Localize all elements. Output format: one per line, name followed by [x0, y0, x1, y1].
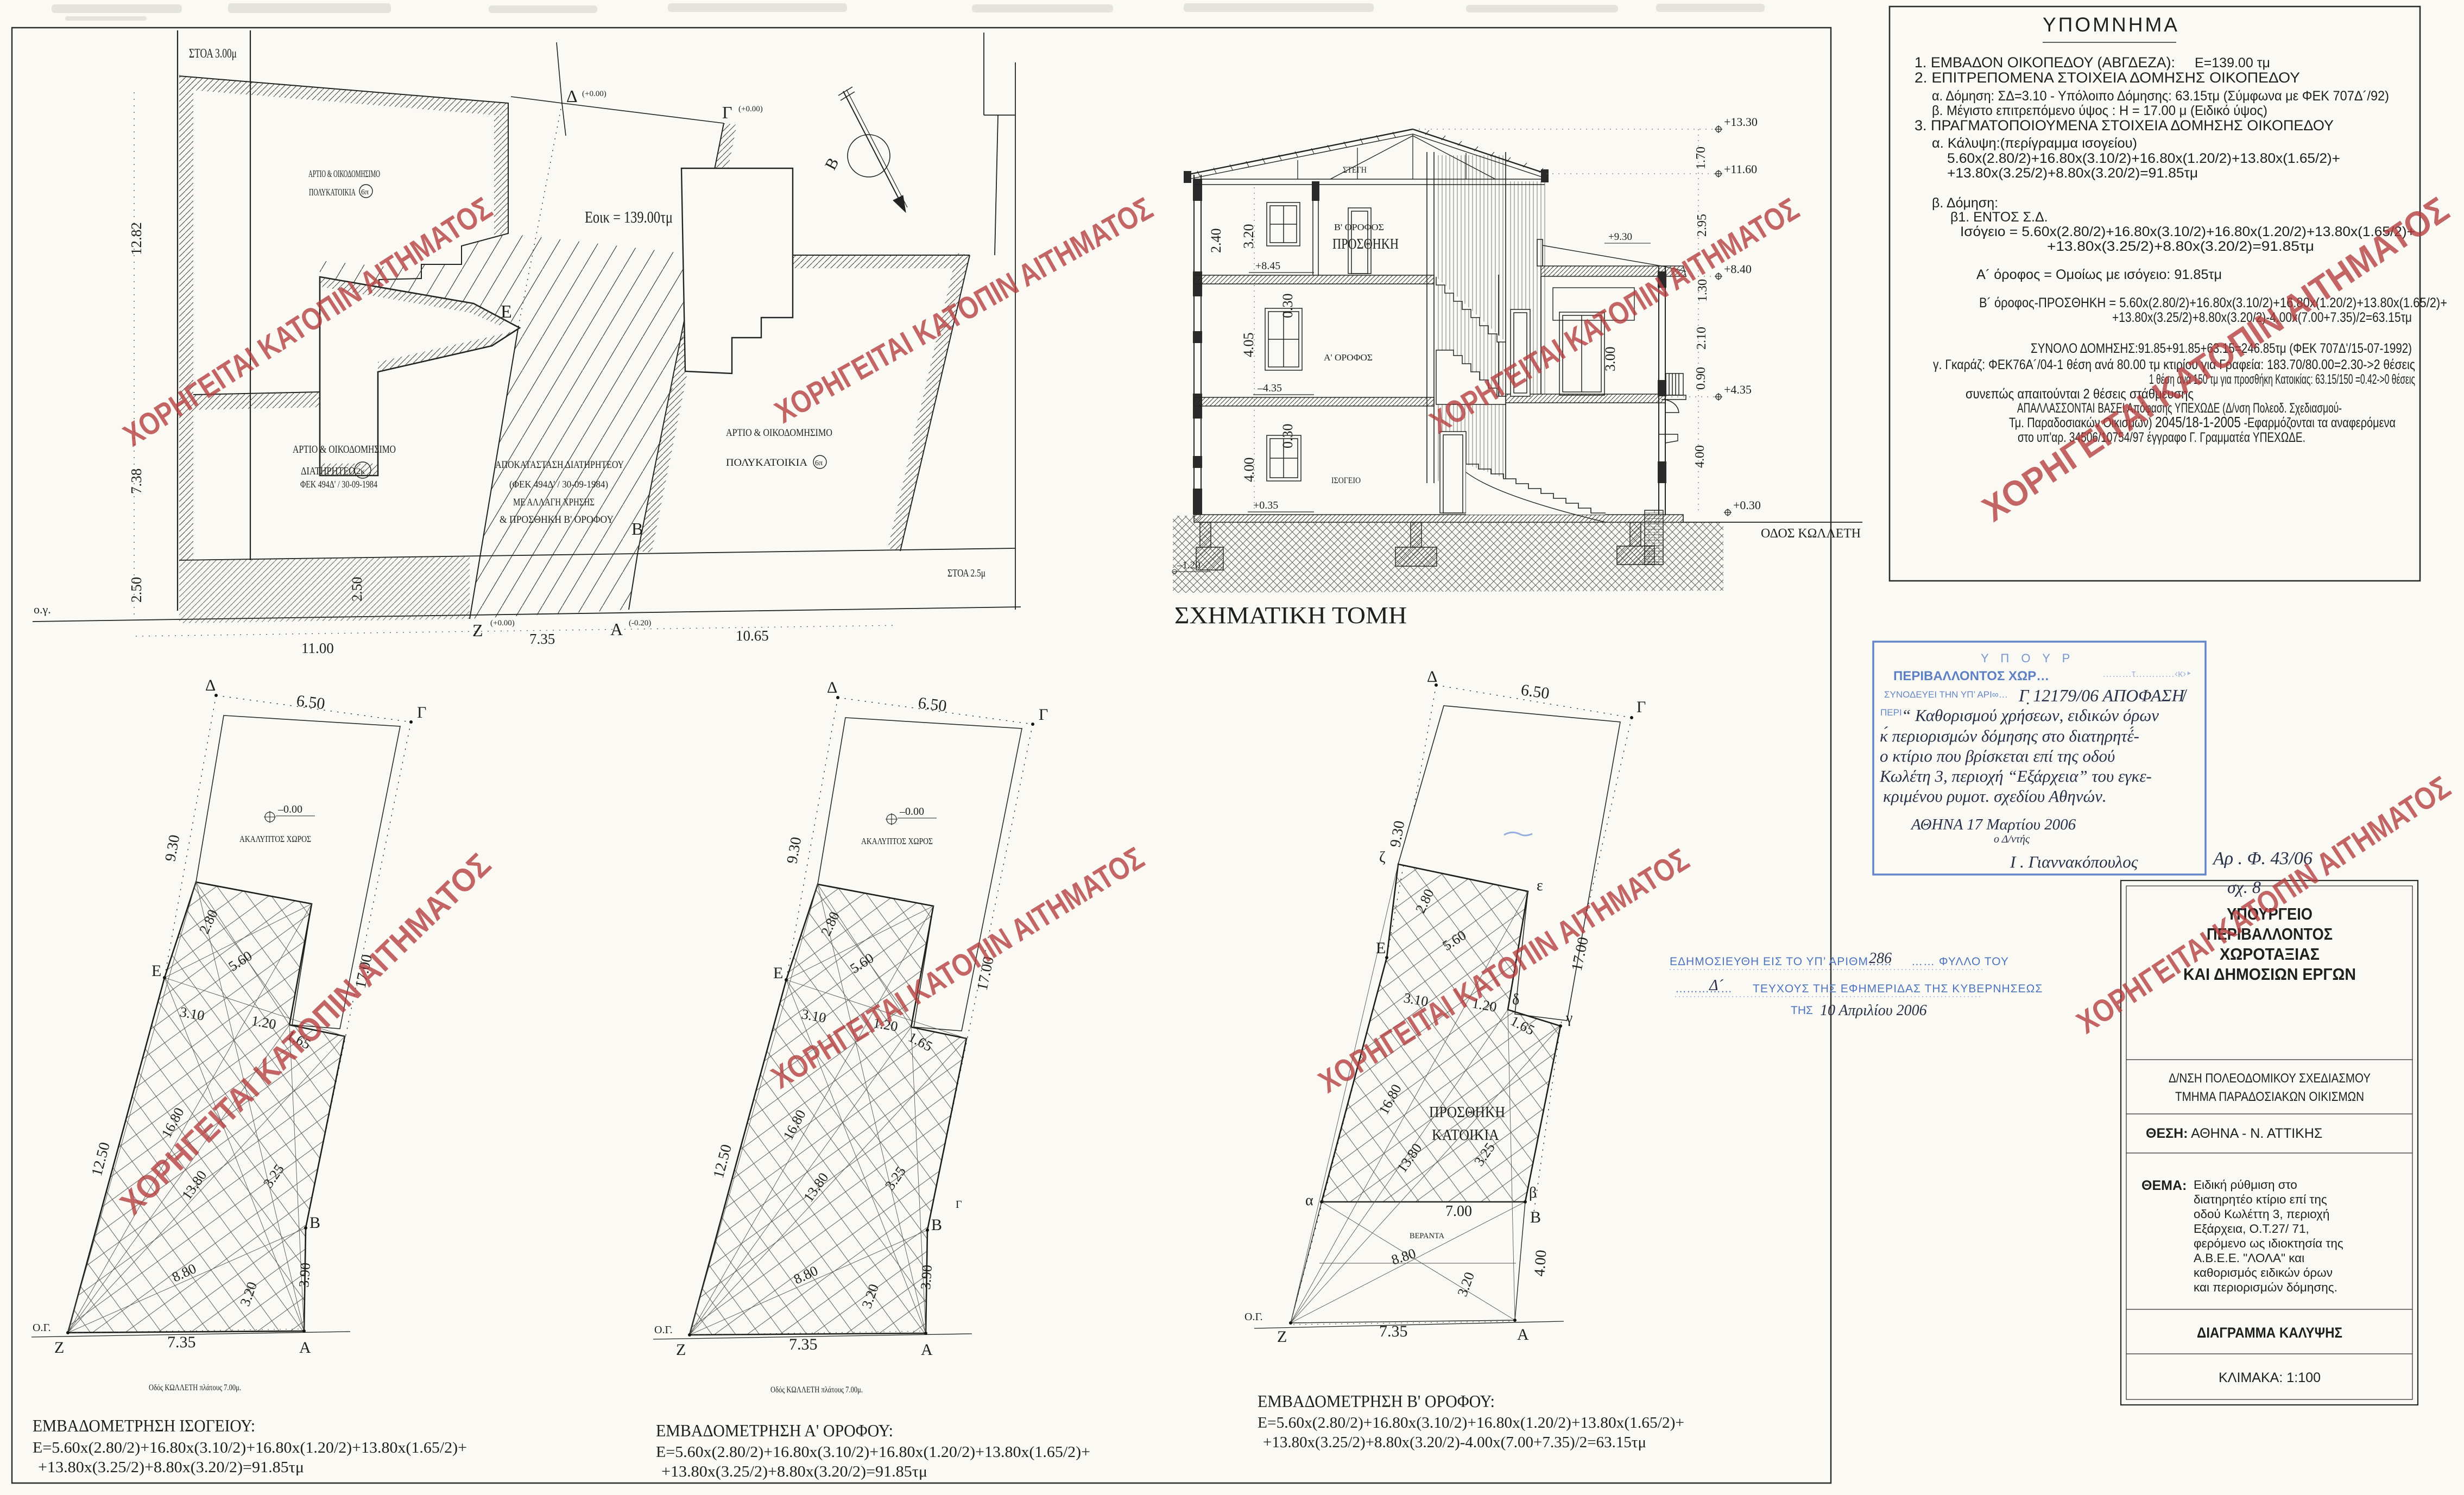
- svg-text:6π: 6π: [815, 459, 823, 467]
- svg-text:Ειδική ρύθμιση στο: Ειδική ρύθμιση στο: [2194, 1178, 2297, 1192]
- svg-text:ΧΩΡΟΤΑΞΙΑΣ: ΧΩΡΟΤΑΞΙΑΣ: [2220, 945, 2320, 964]
- svg-text:Ο.Γ.: Ο.Γ.: [1244, 1311, 1263, 1323]
- svg-text:3. ΠΡΑΓΜΑΤΟΠΟΙΟΥΜΕΝΑ ΣΤΟΙΧΕΙΑ: 3. ΠΡΑΓΜΑΤΟΠΟΙΟΥΜΕΝΑ ΣΤΟΙΧΕΙΑ ΔΟΜΗΣΗΣ ΟΙ…: [1915, 117, 2334, 134]
- svg-text:ο.γ.: ο.γ.: [34, 603, 51, 616]
- svg-text:β. Μέγιστο επιτρεπόμενο ύψος :: β. Μέγιστο επιτρεπόμενο ύψος : Η = 17.00…: [1932, 103, 2267, 118]
- svg-text:286: 286: [1869, 950, 1892, 967]
- svg-text:ΦΕΚ 494Δ' / 30-09-1984: ΦΕΚ 494Δ' / 30-09-1984: [300, 479, 377, 490]
- svg-text:Δ: Δ: [566, 86, 578, 106]
- svg-text:A: A: [299, 1339, 311, 1357]
- svg-text:+11.60: +11.60: [1724, 162, 1757, 176]
- svg-text:2κ: 2κ: [356, 467, 365, 476]
- svg-text:0.90: 0.90: [1694, 367, 1708, 390]
- svg-text:+13.30: +13.30: [1724, 115, 1758, 129]
- svg-text:+13.80x(3.25/2)+8.80x(3.20/2)=: +13.80x(3.25/2)+8.80x(3.20/2)=91.85τμ: [2047, 239, 2314, 254]
- svg-text:1. ΕΜΒΑΔΟΝ ΟΙΚΟΠΕΔΟΥ (ΑΒΓΔΕΖΑ): 1. ΕΜΒΑΔΟΝ ΟΙΚΟΠΕΔΟΥ (ΑΒΓΔΕΖΑ):: [1915, 54, 2175, 71]
- svg-text:7.38: 7.38: [128, 468, 144, 494]
- svg-text:+0.35: +0.35: [1253, 499, 1278, 511]
- svg-text:+13.80x(3.25/2)+8.80x(3.20/2)-: +13.80x(3.25/2)+8.80x(3.20/2)-4.00x(7.00…: [1263, 1434, 1646, 1451]
- svg-text:Δ: Δ: [205, 676, 216, 694]
- svg-text:+0.30: +0.30: [1733, 498, 1761, 512]
- svg-text:7.35: 7.35: [529, 631, 555, 647]
- svg-text:διατηρητέο κτίριο επί της: διατηρητέο κτίριο επί της: [2194, 1193, 2327, 1206]
- svg-text:Ε: Ε: [501, 302, 512, 322]
- svg-text:Εξάρχεια, Ο.Τ.27/ 71,: Εξάρχεια, Ο.Τ.27/ 71,: [2194, 1222, 2309, 1236]
- svg-text:+9.30: +9.30: [1608, 231, 1632, 243]
- svg-text:ΕΜΒΑΔΟΜΕΤΡΗΣΗ ΙΣΟΓΕΙΟΥ:: ΕΜΒΑΔΟΜΕΤΡΗΣΗ ΙΣΟΓΕΙΟΥ:: [33, 1416, 255, 1435]
- svg-text:οδού Κωλέττη 3, περιοχή: οδού Κωλέττη 3, περιοχή: [2194, 1207, 2329, 1221]
- svg-text:‒1.20: ‒1.20: [1177, 560, 1201, 571]
- svg-text:ΤΕΥΧΟΥΣ ΤΗΣ ΕΦΗΜΕΡΙΔΑΣ ΤΗΣ ΚΥΒ: ΤΕΥΧΟΥΣ ΤΗΣ ΕΦΗΜΕΡΙΔΑΣ ΤΗΣ ΚΥΒΕΡΝΗΣΕΩΣ: [1753, 983, 2043, 995]
- svg-text:ΥΠΟΜΝΗΜΑ: ΥΠΟΜΝΗΜΑ: [2043, 14, 2179, 36]
- svg-text:ΣΥΝΟΔΕΥΕΙ ΤΗΝ ΥΠ’ ΑΡΙ∞…: ΣΥΝΟΔΕΥΕΙ ΤΗΝ ΥΠ’ ΑΡΙ∞…: [1884, 689, 2008, 700]
- svg-text:2.40: 2.40: [1208, 229, 1224, 254]
- svg-text:Ε=5.60x(2.80/2)+16.80x(3.10/2): Ε=5.60x(2.80/2)+16.80x(3.10/2)+16.80x(1.…: [33, 1439, 467, 1456]
- svg-text:Υ Π Ο Υ Ρ: Υ Π Ο Υ Ρ: [1981, 651, 2074, 665]
- svg-text:ΕΜΒΑΔΟΜΕΤΡΗΣΗ Β' ΟΡΟΦΟΥ:: ΕΜΒΑΔΟΜΕΤΡΗΣΗ Β' ΟΡΟΦΟΥ:: [1258, 1391, 1495, 1411]
- svg-text:Ισόγειο = 5.60x(2.80/2)+16.80: Ισόγειο = 5.60x(2.80/2)+16.80x(3.10/2)+1…: [1960, 224, 2415, 239]
- svg-text:“ Καθορισμού χρήσεων, ειδικών: “ Καθορισμού χρήσεων, ειδικών όρων: [1901, 706, 2159, 725]
- svg-text:κριμένου ρυμοτ. σχεδίου Αθηνών: κριμένου ρυμοτ. σχεδίου Αθηνών.: [1883, 787, 2107, 806]
- svg-text:ΚΑΤΟΙΚΙΑ: ΚΑΤΟΙΚΙΑ: [1432, 1127, 1500, 1144]
- svg-text:Ι . Γιαννακόπουλος: Ι . Γιαννακόπουλος: [2010, 852, 2138, 871]
- svg-text:ΜΕ ΑΛΛΑΓΗ ΧΡΗΣΗΣ: ΜΕ ΑΛΛΑΓΗ ΧΡΗΣΗΣ: [513, 497, 595, 508]
- svg-text:Z: Z: [54, 1339, 64, 1357]
- svg-text:και περιορισμών δόμησης.: και περιορισμών δόμησης.: [2194, 1281, 2337, 1294]
- svg-text:‒0.00: ‒0.00: [277, 803, 302, 815]
- svg-text:7.35: 7.35: [167, 1333, 196, 1351]
- svg-text:3.00: 3.00: [1602, 347, 1618, 372]
- svg-text:6π: 6π: [361, 188, 369, 197]
- svg-text:3.20: 3.20: [1241, 224, 1256, 249]
- svg-text:ε: ε: [1537, 877, 1543, 894]
- svg-text:β1. ΕΝΤΟΣ Σ.Δ.: β1. ΕΝΤΟΣ Σ.Δ.: [1950, 210, 2048, 225]
- svg-text:ΑΡΤΙΟ & ΟΙΚΟΔΟΜΗΣΙΜΟ: ΑΡΤΙΟ & ΟΙΚΟΔΟΜΗΣΙΜΟ: [726, 427, 832, 439]
- svg-text:& ΠΡΟΣΘΗΚΗ Β' ΟΡΟΦΟΥ: & ΠΡΟΣΘΗΚΗ Β' ΟΡΟΦΟΥ: [500, 514, 614, 525]
- svg-text:α: α: [1305, 1192, 1313, 1209]
- svg-text:B: B: [631, 519, 643, 539]
- svg-text:γ: γ: [1565, 1010, 1572, 1027]
- svg-text:E: E: [151, 962, 161, 980]
- svg-text:(ΦΕΚ 494Δ' / 30-09-1984): (ΦΕΚ 494Δ' / 30-09-1984): [509, 479, 608, 490]
- svg-text:Εοικ = 139.00τμ: Εοικ = 139.00τμ: [585, 207, 673, 226]
- svg-text:ΠΡΟΣΘΗΚΗ: ΠΡΟΣΘΗΚΗ: [1332, 236, 1399, 252]
- svg-text:7.35: 7.35: [1379, 1322, 1408, 1340]
- svg-text:0.30: 0.30: [1280, 294, 1296, 319]
- svg-text:4.00: 4.00: [1531, 1249, 1550, 1277]
- svg-text:ζ: ζ: [1379, 849, 1386, 866]
- svg-text:+4.35: +4.35: [1724, 383, 1752, 396]
- svg-text:ΤΜΗΜΑ ΠΑΡΑΔΟΣΙΑΚΩΝ ΟΙΚΙΣΜΩΝ: ΤΜΗΜΑ ΠΑΡΑΔΟΣΙΑΚΩΝ ΟΙΚΙΣΜΩΝ: [2175, 1089, 2364, 1104]
- svg-text:ΣΤΕΓΗ: ΣΤΕΓΗ: [1343, 166, 1367, 175]
- svg-text:10.65: 10.65: [736, 628, 769, 644]
- svg-text:Ε=5.60x(2.80/2)+16.80x(3.10/2): Ε=5.60x(2.80/2)+16.80x(3.10/2)+16.80x(1.…: [1258, 1414, 1684, 1431]
- svg-text:ΑΘΗΝΑ 17 Μαρτίου 2006: ΑΘΗΝΑ 17 Μαρτίου 2006: [1910, 816, 2076, 833]
- svg-text:ΕΔΗΜΟΣΙΕΥΘΗ ΕΙΣ ΤΟ ΥΠ’ ΑΡΙΘΜ……: ΕΔΗΜΟΣΙΕΥΘΗ ΕΙΣ ΤΟ ΥΠ’ ΑΡΙΘΜ……: [1670, 955, 1892, 968]
- svg-text:+8.45: +8.45: [1255, 260, 1280, 272]
- svg-text:B: B: [309, 1214, 320, 1232]
- svg-text:Γ: Γ: [417, 704, 426, 721]
- svg-text:Α.Β.Ε.Ε. "ΛΟΛΑ" και: Α.Β.Ε.Ε. "ΛΟΛΑ" και: [2194, 1251, 2304, 1265]
- svg-text:+13.80x(3.25/2)+8.80x(3.20/2)=: +13.80x(3.25/2)+8.80x(3.20/2)=91.85τμ: [1947, 166, 2198, 181]
- svg-text:4.00: 4.00: [1241, 458, 1257, 483]
- svg-text:2.50: 2.50: [349, 577, 365, 602]
- svg-text:………τ…………‹κ›‣: ………τ…………‹κ›‣: [2102, 668, 2192, 679]
- svg-text:ΠΟΛΥΚΑΤΟΙΚΙΑ: ΠΟΛΥΚΑΤΟΙΚΙΑ: [309, 187, 356, 198]
- svg-text:καθορισμός ειδικών όρων: καθορισμός ειδικών όρων: [2194, 1266, 2333, 1279]
- svg-text:ο κτίριο που βρίσκεται επί της: ο κτίριο που βρίσκεται επί της οδού: [1880, 746, 2115, 765]
- svg-text:+13.80x(3.25/2)+8.80x(3.20/2)=: +13.80x(3.25/2)+8.80x(3.20/2)=91.85τμ: [661, 1463, 927, 1480]
- svg-text:ΠΡΟΣΘΗΚΗ: ΠΡΟΣΘΗΚΗ: [1429, 1104, 1505, 1121]
- svg-text:ΚΑΙ ΔΗΜΟΣΙΩΝ ΕΡΓΩΝ: ΚΑΙ ΔΗΜΟΣΙΩΝ ΕΡΓΩΝ: [2183, 965, 2356, 984]
- svg-text:6.50: 6.50: [295, 692, 326, 713]
- svg-text:Τμ. Παραδοσιακών Οικισμών) 204: Τμ. Παραδοσιακών Οικισμών) 2045/18-1-200…: [2009, 414, 2396, 430]
- svg-text:ΕΜΒΑΔΟΜΕΤΡΗΣΗ Α' ΟΡΟΦΟΥ:: ΕΜΒΑΔΟΜΕΤΡΗΣΗ Α' ΟΡΟΦΟΥ:: [656, 1421, 893, 1440]
- svg-text:(-0.20): (-0.20): [629, 619, 651, 628]
- svg-text:‒4.35: ‒4.35: [1257, 382, 1282, 394]
- svg-text:ΔΙΑΓΡΑΜΜΑ ΚΑΛΥΨΗΣ: ΔΙΑΓΡΑΜΜΑ ΚΑΛΥΨΗΣ: [2197, 1325, 2342, 1341]
- svg-text:1.70: 1.70: [1694, 147, 1708, 169]
- svg-text:2.50: 2.50: [128, 577, 144, 603]
- svg-text:12.82: 12.82: [128, 222, 144, 255]
- svg-text:(+0.00): (+0.00): [582, 90, 606, 98]
- svg-text:δ: δ: [1512, 991, 1519, 1008]
- svg-text:ΘΕΣΗ: ΑΘΗΝΑ - Ν. ΑΤΤΙΚΗΣ: ΘΕΣΗ: ΑΘΗΝΑ - Ν. ΑΤΤΙΚΗΣ: [2146, 1126, 2322, 1141]
- svg-text:Γ: Γ: [956, 1199, 962, 1211]
- svg-text:β. Δόμηση:: β. Δόμηση:: [1932, 195, 1998, 211]
- svg-text:(+0.00): (+0.00): [738, 105, 763, 113]
- svg-text:ΚΛΙΜΑΚΑ: 1:100: ΚΛΙΜΑΚΑ: 1:100: [2219, 1370, 2321, 1385]
- svg-text:Z: Z: [1277, 1328, 1287, 1346]
- svg-text:ΣΧΗΜΑΤΙΚΗ ΤΟΜΗ: ΣΧΗΜΑΤΙΚΗ ΤΟΜΗ: [1174, 602, 1407, 629]
- svg-text:3.90: 3.90: [296, 1262, 313, 1288]
- svg-text:Γ̣ 12179/06 ΑΠΟΦΑΣΗ̸: Γ̣ 12179/06 ΑΠΟΦΑΣΗ̸: [2018, 686, 2188, 705]
- svg-text:2. ΕΠΙΤΡΕΠΟΜΕΝΑ ΣΤΟΙΧΕΙΑ ΔΟΜΗΣ: 2. ΕΠΙΤΡΕΠΟΜΕΝΑ ΣΤΟΙΧΕΙΑ ΔΟΜΗΣΗΣ ΟΙΚΟΠΕΔ…: [1915, 69, 2300, 86]
- svg-text:5.60x(2.80/2)+16.80x(3.10/2)+1: 5.60x(2.80/2)+16.80x(3.10/2)+16.80x(1.20…: [1947, 151, 2340, 166]
- svg-text:ΟΔΟΣ ΚΩΛΛΕΤΗ: ΟΔΟΣ ΚΩΛΛΕΤΗ: [1761, 527, 1861, 541]
- svg-text:10 Απριλίου 2006: 10 Απριλίου 2006: [1820, 1002, 1927, 1019]
- svg-text:Δ: Δ: [1427, 668, 1437, 686]
- svg-text:Α´ όροφος = Ομοίως με ισόγειο:: Α´ όροφος = Ομοίως με ισόγειο: 91.85τμ: [1976, 267, 2222, 282]
- svg-text:2.10: 2.10: [1695, 327, 1709, 350]
- svg-text:α. Κάλυψη:(περίγραμμα ισογείου: α. Κάλυψη:(περίγραμμα ισογείου): [1932, 136, 2137, 151]
- svg-text:α. Δόμηση: ΣΔ=3.10 - Υπόλοιπο: α. Δόμηση: ΣΔ=3.10 - Υπόλοιπο Δόμησης: 6…: [1932, 88, 2389, 104]
- svg-text:φερόμενο ως ιδιοκτησία της: φερόμενο ως ιδιοκτησία της: [2194, 1237, 2343, 1250]
- svg-text:4.05: 4.05: [1241, 333, 1256, 358]
- svg-text:ο Δ/ντής: ο Δ/ντής: [1994, 833, 2030, 845]
- svg-text:2.95: 2.95: [1695, 214, 1709, 237]
- svg-text:ΑΡΤΙΟ & ΟΙΚΟΔΟΜΗΣΙΜΟ: ΑΡΤΙΟ & ΟΙΚΟΔΟΜΗΣΙΜΟ: [293, 444, 396, 455]
- svg-text:ΑΚΑΛΥΠΤΟΣ ΧΩΡΟΣ: ΑΚΑΛΥΠΤΟΣ ΧΩΡΟΣ: [239, 834, 311, 844]
- svg-text:Δ/ΝΣΗ ΠΟΛΕΟΔΟΜΙΚΟΥ ΣΧΕΔΙΑΣΜΟΥ: Δ/ΝΣΗ ΠΟΛΕΟΔΟΜΙΚΟΥ ΣΧΕΔΙΑΣΜΟΥ: [2169, 1071, 2371, 1086]
- svg-text:Γ: Γ: [722, 103, 732, 122]
- svg-text:0.30: 0.30: [1280, 424, 1296, 449]
- svg-text:ΑΡΤΙΟ & ΟΙΚΟΔΟΜΗΣΙΜΟ: ΑΡΤΙΟ & ΟΙΚΟΔΟΜΗΣΙΜΟ: [308, 168, 380, 179]
- svg-text:Ο.Γ.: Ο.Γ.: [33, 1322, 51, 1334]
- svg-text:Β' ΟΡΟΦΟΣ: Β' ΟΡΟΦΟΣ: [1334, 222, 1384, 232]
- svg-text:……………: ……………: [1675, 983, 1732, 995]
- svg-text:A: A: [1517, 1326, 1529, 1344]
- svg-text:κ́ περιορισμών δόμησης στο δια: κ́ περιορισμών δόμησης στο διατηρητέ́-: [1880, 726, 2139, 745]
- svg-text:ΠΕΡΙ: ΠΕΡΙ: [1880, 707, 1902, 718]
- svg-text:7.00: 7.00: [1445, 1203, 1472, 1220]
- svg-text:ΠΟΛΥΚΑΤΟΙΚΙΑ: ΠΟΛΥΚΑΤΟΙΚΙΑ: [726, 457, 807, 468]
- svg-text:11.00: 11.00: [301, 640, 334, 656]
- svg-text:4.00: 4.00: [1693, 445, 1707, 468]
- svg-text:β: β: [1529, 1184, 1537, 1201]
- svg-text:ΣΤΟΑ 2.5μ: ΣΤΟΑ 2.5μ: [947, 567, 985, 579]
- svg-text:Κωλέτη 3, περιοχή “Εξάρχεια”: Κωλέτη 3, περιοχή “Εξάρχεια” του εγκε-: [1879, 766, 2152, 785]
- svg-text:Γ: Γ: [1637, 698, 1646, 716]
- svg-text:ΒΕΡΑΝΤΑ: ΒΕΡΑΝΤΑ: [1410, 1232, 1444, 1240]
- svg-text:ΘΕΜΑ:: ΘΕΜΑ:: [2141, 1178, 2187, 1193]
- svg-text:Ε=139.00 τμ: Ε=139.00 τμ: [2195, 55, 2270, 71]
- svg-text:E: E: [1376, 939, 1386, 957]
- svg-text:ΤΗΣ: ΤΗΣ: [1791, 1004, 1813, 1017]
- svg-text:Β´ όροφος-ΠΡΟΣΘΗΚΗ = 5.60x(2.8: Β´ όροφος-ΠΡΟΣΘΗΚΗ = 5.60x(2.80/2)+16.80…: [1979, 295, 2447, 311]
- svg-text:ΙΣΟΓΕΙΟ: ΙΣΟΓΕΙΟ: [1331, 476, 1361, 485]
- svg-text:ΑΠΟΚΑΤΑΣΤΑΣΗ ΔΙΑΤΗΡΗΤΕΟΥ: ΑΠΟΚΑΤΑΣΤΑΣΗ ΔΙΑΤΗΡΗΤΕΟΥ: [495, 459, 624, 471]
- svg-text:+13.80x(3.25/2)+8.80x(3.20/2)=: +13.80x(3.25/2)+8.80x(3.20/2)=91.85τμ: [38, 1459, 304, 1476]
- svg-text:(+0.00): (+0.00): [490, 619, 515, 628]
- svg-text:ΔΙΑΤΗΡΗΤΕΟ: ΔΙΑΤΗΡΗΤΕΟ: [301, 465, 355, 477]
- svg-text:B: B: [1530, 1208, 1541, 1226]
- svg-text:Z: Z: [472, 620, 483, 640]
- svg-text:Οδός ΚΩΛΛΕΤΗ πλάτους 7.00μ.: Οδός ΚΩΛΛΕΤΗ πλάτους 7.00μ.: [149, 1383, 241, 1392]
- svg-text:…… ΦΥΛΛΟ ΤΟΥ: …… ΦΥΛΛΟ ΤΟΥ: [1911, 955, 2009, 968]
- svg-text:Α' ΟΡΟΦΟΣ: Α' ΟΡΟΦΟΣ: [1324, 352, 1373, 363]
- svg-text:Ε=5.60x(2.80/2)+16.80x(3.10/2): Ε=5.60x(2.80/2)+16.80x(3.10/2)+16.80x(1.…: [656, 1443, 1090, 1461]
- svg-text:ΣΤΟΑ 3.00μ: ΣΤΟΑ 3.00μ: [189, 47, 237, 61]
- svg-text:ΠΕΡΙΒΑΛΛΟΝΤΟΣ ΧΩΡ…: ΠΕΡΙΒΑΛΛΟΝΤΟΣ ΧΩΡ…: [1893, 669, 2049, 683]
